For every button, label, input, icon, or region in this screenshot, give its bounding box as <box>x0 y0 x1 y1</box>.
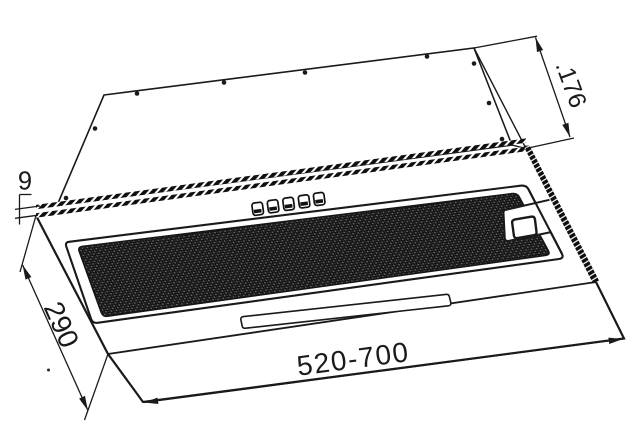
svg-text:.176: .176 <box>550 58 592 112</box>
svg-text:290: 290 <box>38 297 85 352</box>
svg-text:9: 9 <box>18 168 32 196</box>
